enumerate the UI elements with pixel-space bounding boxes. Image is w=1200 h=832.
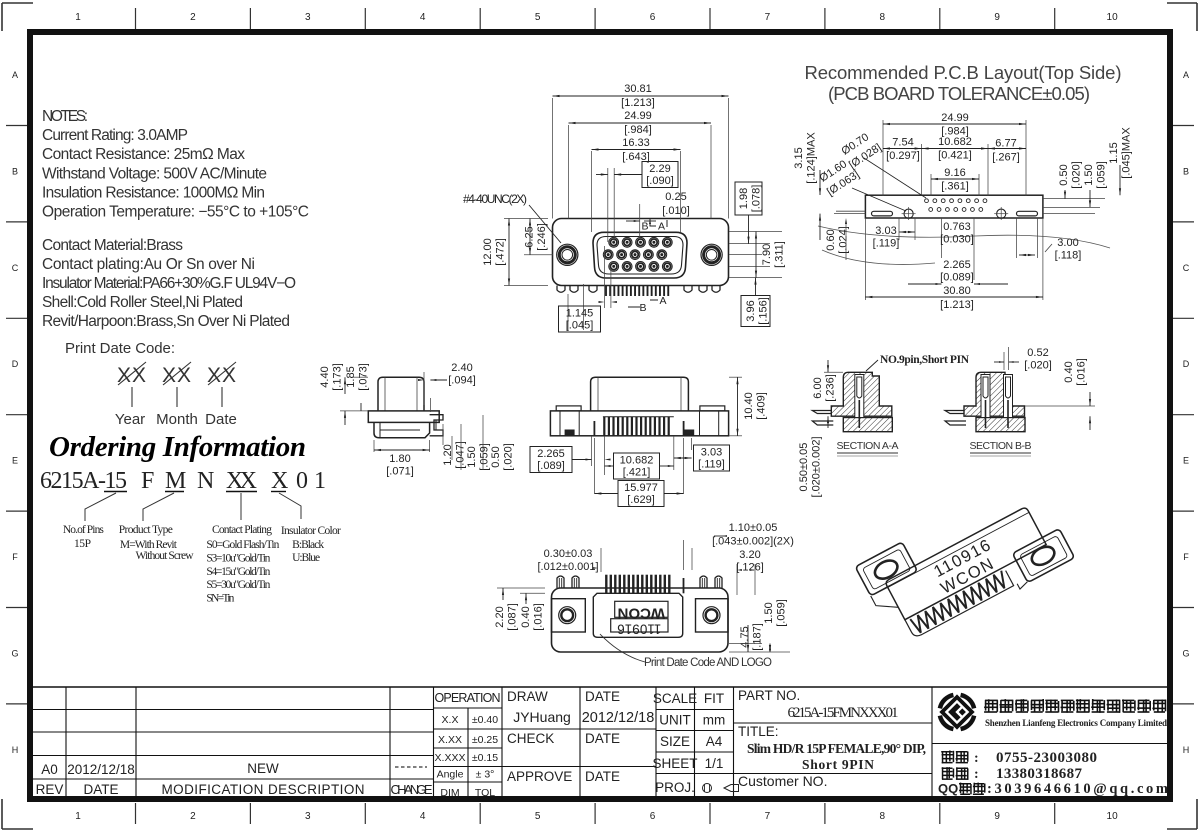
svg-text:1.15: 1.15: [1108, 142, 1120, 163]
svg-text:SECTION A-A: SECTION A-A: [837, 440, 899, 452]
svg-text:24.99: 24.99: [941, 112, 969, 124]
svg-text:DATE: DATE: [585, 689, 620, 704]
svg-text:6.77: 6.77: [995, 138, 1016, 150]
svg-text:[.020±0.002]: [.020±0.002]: [810, 436, 822, 497]
svg-text:4: 4: [420, 12, 426, 23]
svg-text:NEW: NEW: [247, 761, 279, 776]
svg-text:[.045]: [.045]: [566, 320, 594, 332]
svg-text:SN=Tin: SN=Tin: [206, 593, 234, 605]
svg-text:0.25: 0.25: [665, 191, 686, 203]
svg-text:4.40: 4.40: [319, 366, 331, 387]
svg-text:B:Black: B:Black: [292, 539, 324, 551]
svg-text:F: F: [141, 468, 154, 494]
svg-text:24.99: 24.99: [624, 110, 652, 122]
svg-text:Insulator Material:PA66+30%G.F: Insulator Material:PA66+30%G.F UL94V−O: [42, 275, 296, 292]
svg-text:[.187]: [.187]: [751, 623, 763, 651]
svg-text:[.020]: [.020]: [1024, 360, 1052, 372]
svg-text:U:Blue: U:Blue: [292, 552, 320, 564]
svg-text:PART NO.: PART NO.: [738, 688, 800, 703]
svg-text:10: 10: [1107, 811, 1119, 822]
svg-text:Operation Temperature: −55°C t: Operation Temperature: −55°C to +105°C: [42, 204, 309, 221]
svg-text:Year: Year: [115, 411, 145, 428]
svg-text:Short 9PIN: Short 9PIN: [802, 757, 874, 772]
svg-text:7: 7: [765, 811, 771, 822]
svg-text:±0.15: ±0.15: [472, 752, 498, 764]
svg-text:[.267]: [.267]: [992, 152, 1020, 164]
svg-text:NO.9pin,Short PIN: NO.9pin,Short PIN: [880, 354, 970, 366]
svg-text:Recommended P.C.B Layout(Top S: Recommended P.C.B Layout(Top Side): [805, 62, 1122, 83]
svg-text:B: B: [1183, 166, 1189, 176]
svg-text:DIM: DIM: [440, 787, 459, 799]
svg-text:Withstand Voltage: 500V AC/Min: Withstand Voltage: 500V AC/Minute: [42, 166, 267, 183]
svg-text:A: A: [12, 70, 18, 80]
svg-text:10: 10: [1107, 12, 1119, 23]
svg-text:A: A: [1183, 70, 1189, 80]
svg-text:OPERATION: OPERATION: [435, 691, 501, 705]
svg-text:2012/12/18: 2012/12/18: [67, 762, 135, 777]
svg-text:2.40: 2.40: [451, 362, 472, 374]
svg-text:TOL: TOL: [475, 787, 495, 799]
svg-text:4: 4: [420, 811, 426, 822]
svg-text:7.90: 7.90: [761, 244, 773, 265]
svg-text:[.020]: [.020]: [502, 443, 514, 471]
svg-text:Shenzhen Lianfeng Electronics: Shenzhen Lianfeng Electronics Company Li…: [985, 718, 1167, 728]
svg-text:[.156]: [.156]: [757, 297, 769, 325]
svg-text:[.311]: [.311]: [773, 241, 785, 268]
svg-text:[1.213]: [1.213]: [621, 97, 655, 109]
svg-text:9: 9: [994, 811, 1000, 822]
svg-text:SHEET: SHEET: [652, 756, 697, 771]
svg-text:A0: A0: [41, 762, 58, 777]
svg-text:4.75: 4.75: [739, 626, 751, 647]
svg-text:D: D: [1183, 359, 1190, 369]
svg-text:3.03: 3.03: [701, 447, 722, 459]
svg-text:X.X: X.X: [442, 714, 459, 726]
svg-text:[.126]: [.126]: [736, 562, 764, 574]
svg-text:[0.297]: [0.297]: [886, 150, 920, 162]
svg-text:0 1: 0 1: [296, 468, 326, 494]
svg-text:[.010]: [.010]: [662, 205, 690, 217]
svg-text:X.XXX: X.XXX: [435, 752, 466, 764]
svg-text:3.20: 3.20: [739, 549, 760, 561]
svg-text:3: 3: [305, 12, 311, 23]
svg-text:1.10±0.05: 1.10±0.05: [729, 522, 778, 534]
svg-text:S5=30u"Gold/Tin: S5=30u"Gold/Tin: [206, 579, 270, 591]
svg-text:DRAW: DRAW: [507, 689, 548, 704]
svg-text:[0.421]: [0.421]: [938, 150, 972, 162]
svg-text:FIT: FIT: [704, 691, 724, 706]
svg-text:9.16: 9.16: [944, 167, 965, 179]
svg-text:[.090]: [.090]: [646, 175, 674, 187]
svg-text:Shell:Cold Roller Steel,Ni Pla: Shell:Cold Roller Steel,Ni Plated: [42, 294, 243, 311]
svg-text:6: 6: [650, 12, 656, 23]
svg-text:1/1: 1/1: [705, 756, 724, 771]
svg-text:30.81: 30.81: [624, 83, 652, 95]
svg-text:13380318687: 13380318687: [996, 766, 1083, 782]
svg-text:1: 1: [75, 12, 81, 23]
svg-text:Insulator Color: Insulator Color: [281, 525, 341, 537]
svg-text:[.059]: [.059]: [775, 599, 787, 627]
svg-text:[.236]: [.236]: [824, 374, 836, 402]
svg-text:[.059]: [.059]: [1095, 161, 1107, 189]
svg-text:10.40: 10.40: [743, 392, 755, 420]
svg-text:110916: 110916: [617, 622, 661, 637]
svg-text:Contact Plating: Contact Plating: [212, 524, 272, 536]
svg-text:1.145: 1.145: [566, 308, 594, 320]
svg-text:[.089]: [.089]: [537, 460, 565, 472]
svg-text:Without Screw: Without Screw: [136, 550, 195, 562]
svg-text:Insulation Resistance: 1000MΩ: Insulation Resistance: 1000MΩ Min: [42, 185, 265, 202]
svg-text:[.012±0.001]: [.012±0.001]: [537, 561, 598, 573]
svg-text:0.52: 0.52: [1027, 347, 1048, 359]
svg-text:DATE: DATE: [585, 769, 620, 784]
svg-text::: :: [974, 751, 979, 766]
svg-text:Contact plating:Au Or Sn over: Contact plating:Au Or Sn over Ni: [42, 256, 255, 273]
svg-text:[.409]: [.409]: [755, 392, 767, 420]
svg-text:DATE: DATE: [585, 731, 620, 746]
svg-text:M: M: [165, 468, 186, 494]
svg-text:[.059]: [.059]: [478, 443, 490, 471]
svg-text:A: A: [658, 221, 665, 233]
svg-text:6.00: 6.00: [812, 377, 824, 398]
svg-text:0.40: 0.40: [1063, 361, 1075, 382]
svg-text:[0.089]: [0.089]: [940, 272, 974, 284]
svg-text:3.96: 3.96: [745, 300, 757, 321]
svg-text:[.246]: [.246]: [536, 223, 548, 251]
svg-text:[.984]: [.984]: [624, 124, 652, 136]
svg-text:APPROVE: APPROVE: [507, 769, 572, 784]
svg-text:G: G: [11, 648, 18, 658]
svg-text:Contact Resistance: 25mΩ Max: Contact Resistance: 25mΩ Max: [42, 146, 245, 163]
svg-text:3.03: 3.03: [875, 225, 896, 237]
svg-text:No.of Pins: No.of Pins: [63, 524, 105, 536]
svg-text:XX: XX: [117, 364, 147, 387]
svg-text:N: N: [197, 468, 214, 494]
svg-text:[.047]: [.047]: [454, 441, 466, 469]
svg-text:[.045]MAX: [.045]MAX: [1120, 127, 1132, 179]
svg-text:Product Type: Product Type: [119, 524, 173, 536]
svg-text:Print Date Code:: Print Date Code:: [65, 340, 175, 357]
svg-text:Angle: Angle: [437, 769, 464, 781]
svg-text:8: 8: [880, 811, 886, 822]
svg-text:XX: XX: [162, 364, 192, 387]
svg-text:S4=15u"Gold/Tin: S4=15u"Gold/Tin: [206, 566, 270, 578]
svg-text:[.087]: [.087]: [506, 603, 518, 631]
svg-text:[1.213]: [1.213]: [940, 299, 974, 311]
svg-text:[.119]: [.119]: [698, 459, 725, 471]
svg-text:E: E: [12, 456, 18, 466]
svg-text:B: B: [641, 221, 648, 233]
svg-text:6: 6: [650, 811, 656, 822]
svg-text:15P: 15P: [74, 538, 91, 550]
svg-text:Print Date Code AND LOGO: Print Date Code AND LOGO: [644, 657, 772, 669]
svg-text:X.XX: X.XX: [438, 734, 462, 746]
svg-text:CHECK: CHECK: [507, 731, 554, 746]
svg-text:Ordering Information: Ordering Information: [49, 431, 306, 463]
svg-text:6215A-15FMNXXX01: 6215A-15FMNXXX01: [788, 705, 899, 721]
svg-text:[.020]: [.020]: [1070, 161, 1082, 189]
svg-text:1.50: 1.50: [763, 602, 775, 623]
svg-text:2.29: 2.29: [649, 163, 670, 175]
svg-text:0.50±0.05: 0.50±0.05: [798, 443, 810, 492]
svg-text:12.00: 12.00: [482, 238, 494, 266]
svg-text:2.265: 2.265: [943, 259, 971, 271]
svg-text:10.682: 10.682: [620, 455, 654, 467]
svg-text:C: C: [1183, 263, 1190, 273]
svg-text:UNIT: UNIT: [659, 713, 691, 728]
svg-text:[.016]: [.016]: [1075, 358, 1087, 386]
svg-text:B: B: [12, 166, 18, 176]
svg-text:0.50: 0.50: [1058, 164, 1070, 185]
svg-text:S0=Gold Flash/Tin: S0=Gold Flash/Tin: [206, 539, 279, 551]
svg-text:REV: REV: [36, 782, 64, 797]
svg-text:SCALE: SCALE: [653, 691, 697, 706]
svg-text:D: D: [12, 359, 19, 369]
svg-text:15.977: 15.977: [624, 482, 658, 494]
svg-text:2012/12/18: 2012/12/18: [582, 710, 655, 726]
svg-text:[.043±0.002](2X): [.043±0.002](2X): [712, 536, 794, 548]
svg-text:0.60: 0.60: [825, 229, 837, 250]
svg-text:[.472]: [.472]: [494, 238, 506, 266]
svg-text:X: X: [271, 468, 288, 494]
svg-text::3039646610@qq.com: :3039646610@qq.com: [987, 781, 1168, 797]
svg-text:[0.030]: [0.030]: [940, 234, 974, 246]
svg-text:[.118]: [.118]: [1055, 250, 1082, 262]
svg-text:SIZE: SIZE: [660, 734, 690, 749]
svg-text:6215A-15: 6215A-15: [40, 468, 127, 494]
svg-text:6.25: 6.25: [523, 226, 535, 247]
svg-text:#4-40UNC(2X): #4-40UNC(2X): [463, 192, 527, 206]
svg-text:A4: A4: [706, 734, 723, 749]
svg-text:Slim HD/R 15P FEMALE,90° DIP,: Slim HD/R 15P FEMALE,90° DIP,: [747, 741, 926, 756]
svg-text:0.50: 0.50: [490, 446, 502, 467]
svg-text:0.30±0.03: 0.30±0.03: [544, 548, 593, 560]
svg-text:G: G: [1182, 648, 1189, 658]
svg-text:±0.40: ±0.40: [472, 714, 498, 726]
svg-text:JYHuang: JYHuang: [513, 709, 571, 725]
svg-text:2.20: 2.20: [494, 606, 506, 627]
svg-text:S3=10u"Gold/Tin: S3=10u"Gold/Tin: [206, 552, 270, 564]
svg-text:Date: Date: [205, 411, 237, 428]
svg-text:mm: mm: [703, 713, 726, 728]
svg-text:XX: XX: [207, 364, 237, 387]
svg-text:DATE: DATE: [83, 782, 118, 797]
svg-text:0.763: 0.763: [943, 221, 971, 233]
svg-text:8: 8: [880, 12, 886, 23]
svg-text:[.071]: [.071]: [386, 466, 414, 478]
svg-text:[.629]: [.629]: [627, 494, 655, 506]
svg-text:[.361]: [.361]: [941, 181, 969, 193]
svg-text:0755-23003080: 0755-23003080: [996, 750, 1097, 766]
svg-text:F: F: [12, 552, 18, 562]
svg-text:2: 2: [190, 12, 196, 23]
svg-text:SECTION B-B: SECTION B-B: [970, 440, 1032, 452]
svg-text:1.98: 1.98: [738, 188, 750, 209]
svg-text:C: C: [12, 263, 19, 273]
svg-text:Contact Material:Brass: Contact Material:Brass: [42, 237, 183, 254]
svg-text:NOTES:: NOTES:: [42, 108, 88, 125]
svg-text:2.265: 2.265: [537, 448, 565, 460]
svg-text:PROJ.: PROJ.: [655, 780, 695, 795]
svg-text:Revit/Harpoon:Brass,Sn Over Ni: Revit/Harpoon:Brass,Sn Over Ni Plated: [42, 313, 290, 330]
svg-text::: :: [974, 767, 979, 782]
svg-text:± 3°: ± 3°: [476, 769, 495, 781]
svg-text:[.078]: [.078]: [750, 185, 762, 213]
svg-text:1.50: 1.50: [466, 446, 478, 467]
svg-text:5: 5: [535, 811, 541, 822]
svg-text:[.024]: [.024]: [837, 226, 849, 254]
svg-text:[.016]: [.016]: [532, 603, 544, 631]
svg-text:QQ: QQ: [938, 781, 958, 796]
svg-text:3: 3: [305, 811, 311, 822]
svg-text:2: 2: [190, 811, 196, 822]
svg-text:0.40: 0.40: [520, 606, 532, 627]
svg-text:[.124]MAX: [.124]MAX: [805, 132, 817, 184]
svg-text:F: F: [1183, 552, 1189, 562]
svg-text:10.682: 10.682: [938, 136, 972, 148]
svg-text:1.50: 1.50: [1083, 164, 1095, 185]
svg-text:[.094]: [.094]: [448, 375, 476, 387]
svg-text:A: A: [659, 295, 666, 307]
svg-text:H: H: [1183, 745, 1190, 755]
svg-text:7: 7: [765, 12, 771, 23]
svg-text:MODIFICATION DESCRIPTION: MODIFICATION DESCRIPTION: [162, 782, 365, 797]
svg-text:H: H: [12, 745, 19, 755]
svg-text:TITLE:: TITLE:: [738, 724, 779, 739]
svg-text:[.173]: [.173]: [331, 363, 343, 391]
svg-text:±0.25: ±0.25: [472, 734, 498, 746]
svg-text:Current Rating: 3.0AMP: Current Rating: 3.0AMP: [42, 127, 188, 144]
svg-text:3.15: 3.15: [793, 147, 805, 168]
svg-text:Month: Month: [156, 411, 198, 428]
svg-text:5: 5: [535, 12, 541, 23]
svg-text:9: 9: [994, 12, 1000, 23]
svg-text:XX: XX: [226, 468, 257, 494]
svg-text:30.80: 30.80: [943, 285, 971, 297]
svg-text:(PCB BOARD TOLERANCE±0.05): (PCB BOARD TOLERANCE±0.05): [828, 83, 1090, 104]
svg-text:3.00: 3.00: [1057, 237, 1078, 249]
svg-text:[.119]: [.119]: [873, 238, 900, 250]
svg-text:E: E: [1183, 456, 1189, 466]
svg-text:7.54: 7.54: [892, 137, 913, 149]
svg-text:[.421]: [.421]: [623, 467, 651, 479]
svg-text:B: B: [639, 302, 646, 314]
svg-text:Customer NO.: Customer NO.: [738, 773, 827, 789]
svg-text:CHANGE: CHANGE: [391, 782, 433, 797]
svg-text:16.33: 16.33: [622, 137, 650, 149]
svg-text:1.80: 1.80: [389, 453, 410, 465]
svg-text:1: 1: [75, 811, 81, 822]
